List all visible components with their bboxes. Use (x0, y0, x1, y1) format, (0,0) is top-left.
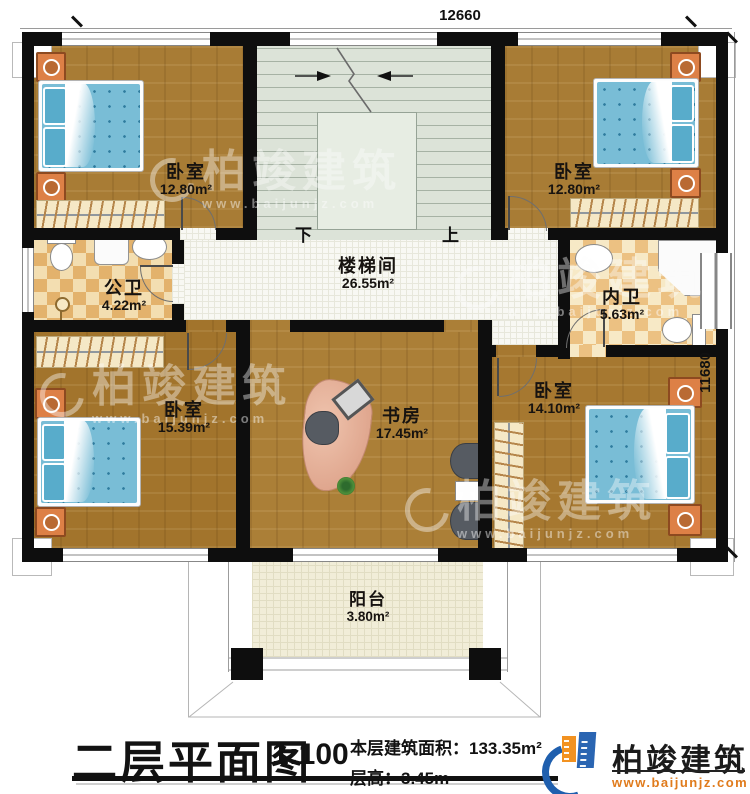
wall (438, 548, 527, 562)
room-name: 卧室 (140, 162, 232, 182)
wall (478, 345, 496, 357)
bed (38, 80, 144, 172)
room-area: 15.39m² (138, 420, 230, 436)
window (700, 253, 732, 329)
armchair (450, 443, 481, 479)
door-threshold (496, 345, 536, 357)
dimension-top-label: 12660 (415, 7, 505, 24)
door-threshold (186, 320, 226, 332)
dimension-line-top (20, 28, 732, 29)
wall (290, 320, 444, 332)
floor-plan-page: 12660 11680 (0, 0, 750, 794)
dimension-line-right (734, 32, 735, 562)
floor-drain (55, 297, 70, 312)
label-bedroom-bottom-right: 卧室14.10m² (508, 381, 600, 417)
door-threshold (250, 320, 290, 332)
room-name: 楼梯间 (318, 256, 418, 276)
wall (661, 32, 728, 46)
window (22, 248, 34, 312)
label-bedroom-top-right: 卧室12.80m² (528, 162, 620, 198)
wall (210, 32, 290, 46)
window (527, 548, 677, 562)
wall (22, 312, 34, 548)
plan-scale: 1:100 (272, 738, 349, 772)
floor-height-label: 层高： (350, 769, 401, 788)
dimension-tick (685, 15, 697, 27)
stair-up-label: 上 (442, 221, 459, 246)
roof-outline (0, 556, 750, 736)
title-underline (72, 776, 558, 781)
dimension-tick (71, 15, 83, 27)
room-name: 卧室 (508, 381, 600, 401)
room-name: 卧室 (138, 400, 230, 420)
window (518, 32, 661, 46)
wall (22, 32, 62, 46)
wall (243, 46, 257, 240)
title-underline-shadow (76, 783, 558, 785)
nightstand (668, 504, 702, 536)
room-name: 内卫 (580, 287, 664, 307)
brand-divider (612, 770, 745, 772)
wall (491, 228, 508, 240)
nightstand (36, 172, 66, 202)
balcony-column (469, 648, 501, 680)
floor-area-row: 本层建筑面积：133.35m² (350, 734, 542, 759)
room-area: 12.80m² (140, 182, 232, 198)
label-balcony: 阳台3.80m² (330, 590, 406, 624)
window (62, 32, 210, 46)
nightstand (35, 388, 66, 419)
balcony-column (231, 648, 263, 680)
wall (22, 228, 180, 240)
label-bedroom-bottom-left: 卧室15.39m² (138, 400, 230, 436)
office-chair (305, 411, 339, 445)
wardrobe (570, 198, 699, 228)
wall (548, 228, 728, 240)
window (63, 548, 208, 562)
nightstand (35, 507, 66, 537)
wall (208, 548, 293, 562)
balcony-sliding-door (293, 548, 438, 562)
wall (172, 240, 184, 264)
stair-direction-arrows (257, 46, 491, 242)
wall (677, 548, 728, 562)
wardrobe (36, 336, 164, 368)
room-area: 4.22m² (82, 298, 166, 314)
toilet (50, 243, 73, 271)
wall (491, 46, 505, 240)
label-stair-hall: 楼梯间26.55m² (318, 256, 418, 292)
room-area: 3.80m² (330, 609, 406, 624)
room-area: 17.45m² (356, 426, 448, 442)
wall (22, 320, 186, 332)
room-area: 5.63m² (580, 307, 664, 323)
plant (337, 477, 355, 495)
bed (37, 417, 141, 507)
logo-building-blue (577, 732, 597, 768)
wall (536, 345, 566, 357)
wall (22, 548, 63, 562)
wall (437, 32, 518, 46)
wardrobe (494, 422, 524, 552)
room-name: 卧室 (528, 162, 620, 182)
logo-building-orange (562, 736, 576, 762)
floor-height-row: 层高：3.45m (350, 764, 449, 789)
room-name: 书房 (356, 406, 448, 426)
room-area: 14.10m² (508, 401, 600, 417)
room-name: 公卫 (82, 278, 166, 298)
wall (22, 46, 34, 248)
nightstand (670, 168, 701, 198)
wall (716, 46, 728, 255)
floor-area-label: 本层建筑面积： (350, 739, 469, 758)
bed (593, 78, 699, 168)
window (290, 32, 437, 46)
brand-name: 柏竣建筑 (612, 735, 748, 780)
label-study: 书房17.45m² (356, 406, 448, 442)
room-area: 26.55m² (318, 276, 418, 292)
brand-website: www.baijunjz.com (612, 775, 748, 790)
floor-height-value: 3.45m (401, 769, 449, 788)
nightstand (36, 52, 66, 82)
floor-area-value: 133.35m² (469, 739, 542, 758)
armchair (450, 502, 481, 540)
brand-logo-icon (540, 730, 606, 790)
label-bath-public: 公卫4.22m² (82, 278, 166, 314)
side-table (455, 481, 479, 501)
wardrobe (36, 200, 165, 229)
room-area: 12.80m² (528, 182, 620, 198)
room-name: 阳台 (330, 590, 406, 609)
wall (216, 228, 257, 240)
toilet (662, 317, 692, 343)
wall (716, 329, 728, 548)
label-bath-private: 内卫5.63m² (580, 287, 664, 323)
door-threshold (172, 264, 184, 304)
stair-down-label: 下 (295, 221, 312, 246)
door-threshold (444, 320, 478, 332)
label-bedroom-top-left: 卧室12.80m² (140, 162, 232, 198)
dimension-right-label: 11680 (697, 352, 714, 393)
sink (575, 244, 613, 273)
wall (236, 320, 250, 548)
bed (585, 405, 695, 504)
